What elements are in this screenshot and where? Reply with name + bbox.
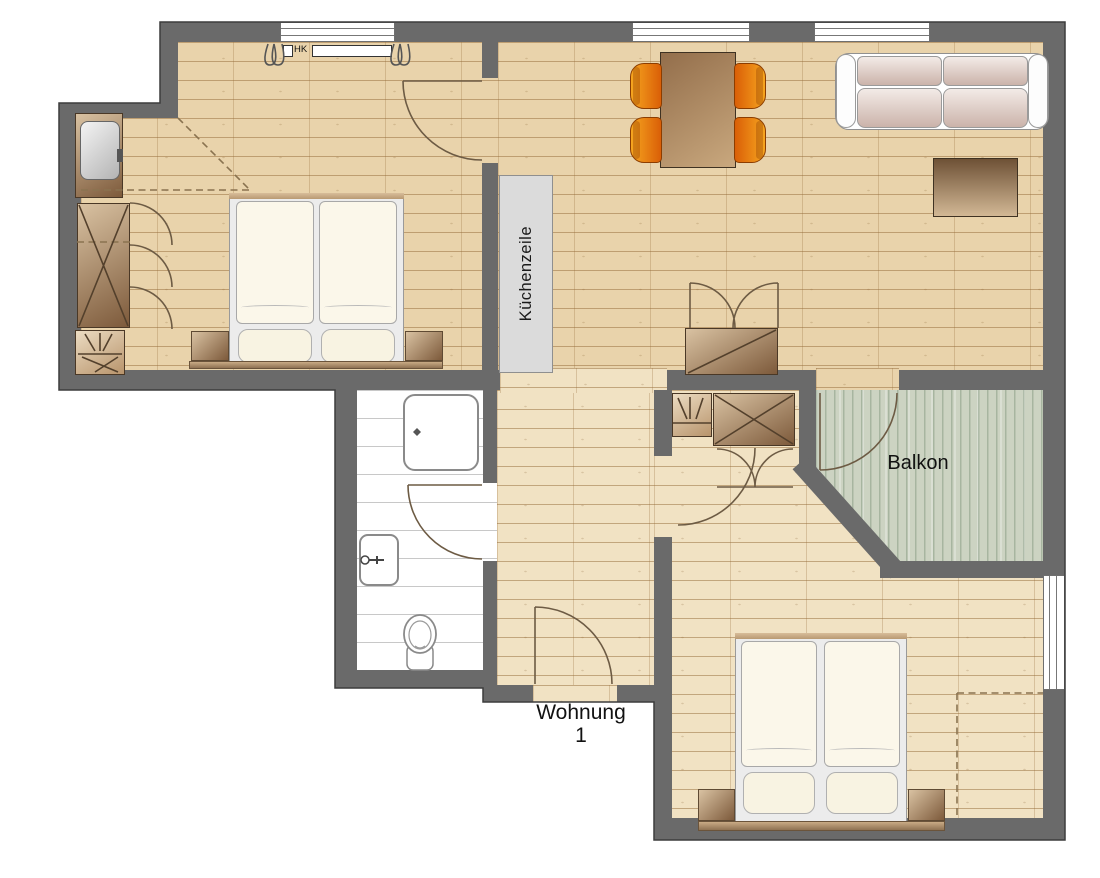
bed2-mattress-left [741,641,817,767]
kitchen-unit-label: Küchenzeile [517,226,536,321]
bed1-pillow-left [238,329,312,363]
bed2-headboard [698,821,945,831]
bed1-headboard [189,361,443,369]
apartment-label-name: Wohnung [511,701,651,724]
wall-segment [654,537,672,840]
apartment-label-number: 1 [511,724,651,747]
wall-segment [799,390,816,476]
bed1-nightstand-left [191,331,229,361]
bed1-pillow-right [321,329,395,363]
bed2-nightstand-right [908,789,945,821]
wall-segment [483,390,497,483]
dining-chair [734,117,766,163]
window-living-left [632,22,750,42]
bed1-mattress-left [236,201,314,324]
floor-plan: HK Küchenzeile Balkon Wohnung 1 [0,0,1100,878]
radiator [312,45,392,57]
shower [403,394,479,471]
bed2-foot-board [735,633,907,639]
balcony-door-floor-patch [816,368,899,390]
sofa-armrest [1028,54,1048,128]
wardrobe-hallway [713,393,795,446]
bed1-nightstand-right [405,331,443,361]
wall-segment [395,22,632,42]
sink [359,534,399,586]
radiator-label: HK [294,44,307,55]
kitchen-unit: Küchenzeile [499,175,553,373]
bed1-foot-board [229,193,404,199]
dresser-mirror [80,121,120,180]
bed2-nightstand-left [698,789,735,821]
wall-segment [483,685,533,702]
dining-chair [630,117,662,163]
apartment-label: Wohnung 1 [511,701,651,747]
wall-segment [160,22,280,42]
wall-segment [617,685,657,702]
window-bedroom2 [1043,575,1065,690]
wall-segment [482,42,498,78]
sofa-back-cushion [943,56,1028,86]
closet-living [685,328,778,375]
dresser-handle [117,149,123,162]
bed2-pillow-right [826,772,898,814]
entrance-floor-strip [533,685,617,702]
wall-segment [335,390,357,688]
sofa-seat-cushion [857,88,942,128]
wall-segment [483,561,497,688]
bed1-mattress-right [319,201,397,324]
dining-chair [630,63,662,109]
balcony-label: Balkon [858,452,978,475]
luggage-rack-bedroom1 [75,330,125,375]
bed2-pillow-left [743,772,815,814]
sofa-armrest [836,54,856,128]
wall-segment [482,163,498,370]
wall-segment [880,561,1065,578]
radiator-valve [283,45,293,57]
dining-table [660,52,736,168]
dining-chair [734,63,766,109]
wall-segment [899,370,1065,390]
sofa-back-cushion [857,56,942,86]
sofa-seat-cushion [943,88,1028,128]
wall-segment [335,670,497,688]
coffee-table [933,158,1018,217]
hallway-floor [497,390,654,685]
wardrobe-bedroom1 [77,203,130,328]
bed2-mattress-right [824,641,900,767]
window-bedroom1 [280,22,395,42]
wall-segment [750,22,814,42]
window-living-right [814,22,930,42]
wall-segment [654,390,672,456]
shoe-rack-hallway [672,393,712,437]
wall-segment [59,370,500,390]
